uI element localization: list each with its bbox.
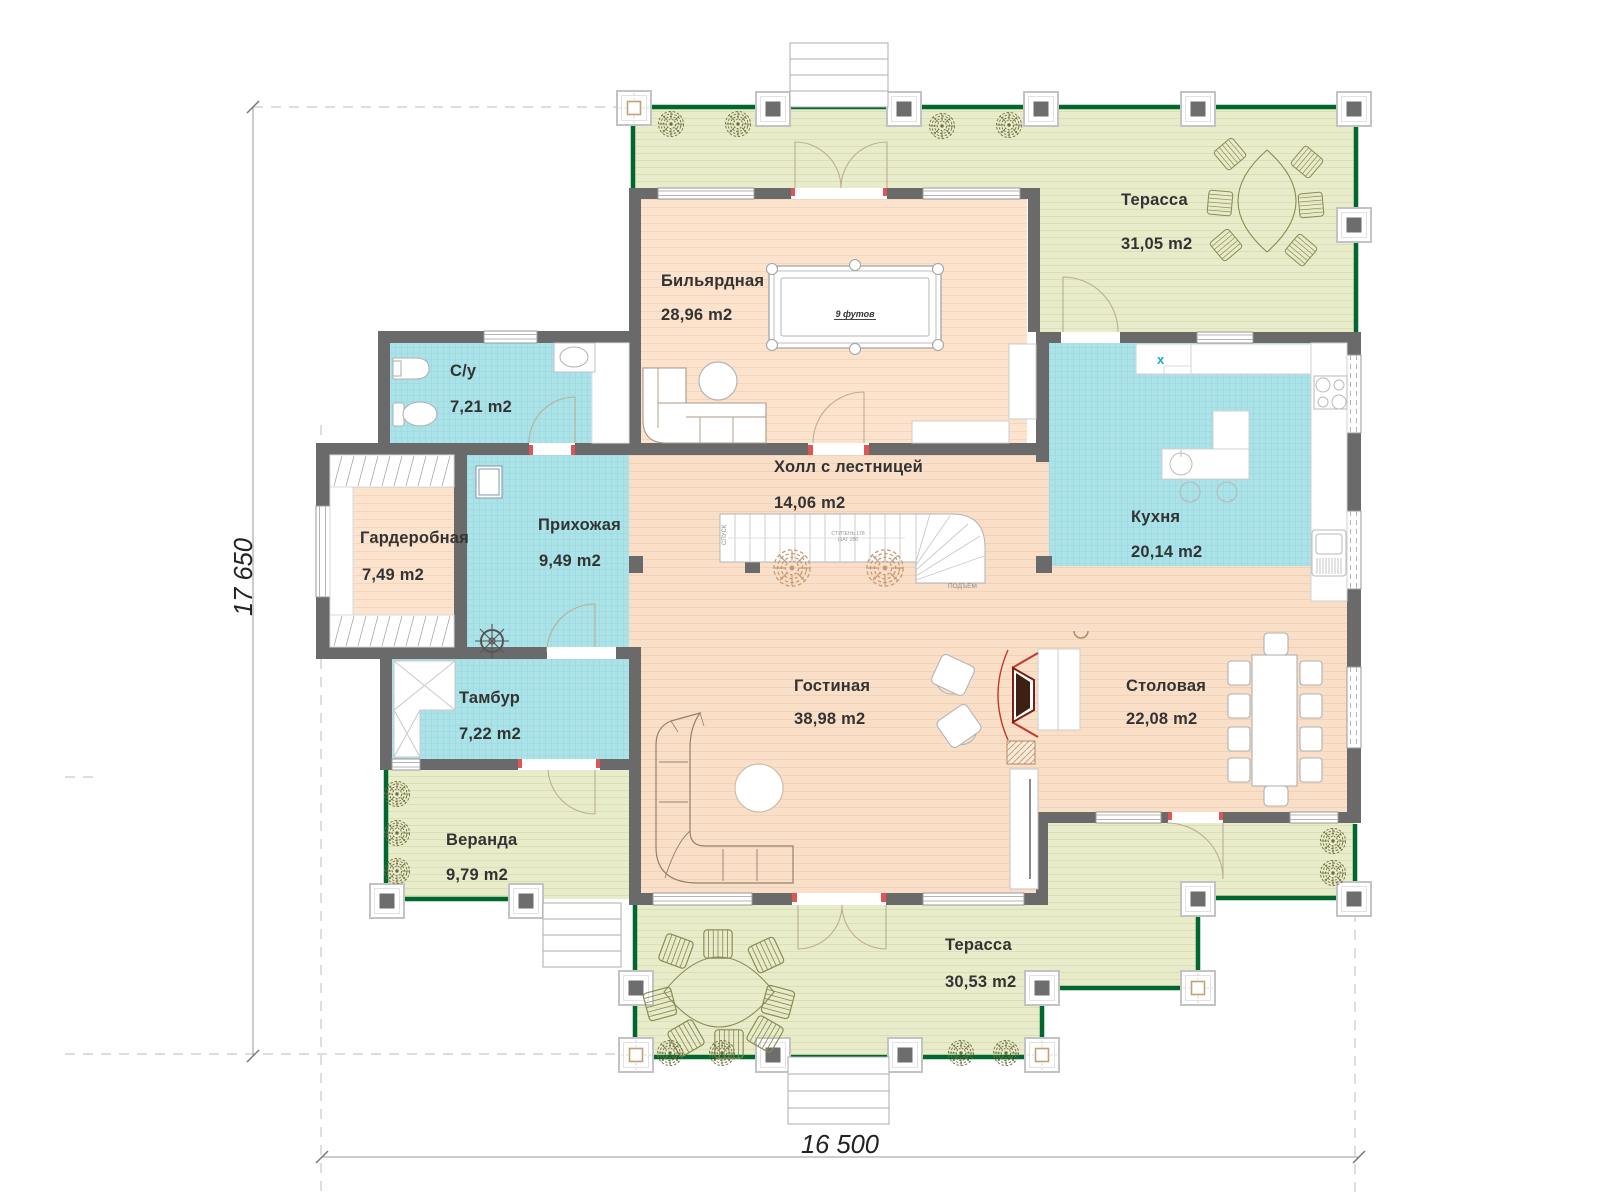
svg-text:Терасса: Терасса xyxy=(1121,191,1188,209)
svg-text:14,06 m2: 14,06 m2 xyxy=(774,494,845,512)
svg-text:28,96 m2: 28,96 m2 xyxy=(661,306,732,324)
svg-text:ПОДЪЕМ: ПОДЪЕМ xyxy=(948,583,977,590)
svg-text:Тамбур: Тамбур xyxy=(459,689,520,707)
svg-text:Бильярдная: Бильярдная xyxy=(661,272,764,290)
svg-text:Прихожая: Прихожая xyxy=(538,516,621,534)
svg-text:x: x xyxy=(1157,352,1165,367)
svg-text:С/у: С/у xyxy=(450,362,477,380)
svg-text:16 500: 16 500 xyxy=(801,1131,879,1159)
svg-text:9,79 m2: 9,79 m2 xyxy=(446,866,508,884)
svg-text:9 футов: 9 футов xyxy=(835,309,875,319)
svg-text:38,98 m2: 38,98 m2 xyxy=(794,710,865,728)
svg-text:31,05 m2: 31,05 m2 xyxy=(1121,235,1192,253)
svg-text:17 650: 17 650 xyxy=(230,538,258,616)
svg-text:22,08 m2: 22,08 m2 xyxy=(1126,710,1197,728)
svg-text:7,49 m2: 7,49 m2 xyxy=(362,566,424,584)
svg-text:Кухня: Кухня xyxy=(1131,508,1180,526)
svg-text:Гостиная: Гостиная xyxy=(794,677,870,695)
svg-text:30,53 m2: 30,53 m2 xyxy=(945,973,1016,991)
svg-text:СПУСК: СПУСК xyxy=(722,524,728,545)
svg-text:Терасса: Терасса xyxy=(945,936,1012,954)
svg-text:Гардеробная: Гардеробная xyxy=(360,529,469,547)
svg-text:7,21 m2: 7,21 m2 xyxy=(450,398,512,416)
svg-text:9,49 m2: 9,49 m2 xyxy=(539,552,601,570)
svg-text:Холл с лестницей: Холл с лестницей xyxy=(774,458,923,476)
svg-text:ШАГ 280: ШАГ 280 xyxy=(838,537,859,543)
svg-text:Веранда: Веранда xyxy=(446,831,518,849)
svg-text:20,14 m2: 20,14 m2 xyxy=(1131,543,1202,561)
svg-text:Столовая: Столовая xyxy=(1126,677,1206,695)
svg-text:7,22 m2: 7,22 m2 xyxy=(459,725,521,743)
